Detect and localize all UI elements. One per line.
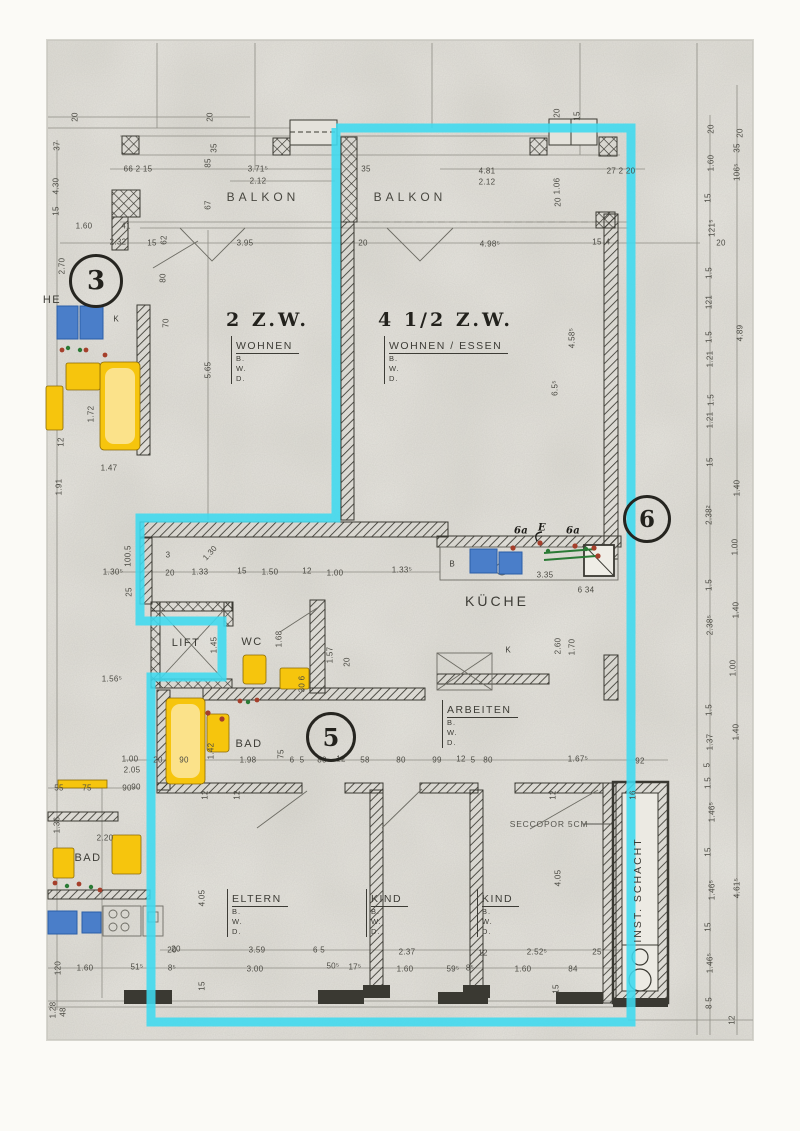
dimension-label: 1.98 [240, 756, 257, 765]
dimension-label: 3.00 [247, 965, 264, 974]
dimension-label: 25 [125, 587, 134, 597]
dimension-label: 37 [53, 141, 62, 151]
dimension-label: 15 [706, 457, 715, 467]
dimension-label: 1.46⁵ [706, 953, 715, 973]
dimension-label: 90 [179, 756, 189, 765]
dimension-label: 6a [566, 526, 580, 537]
dimension-label: 48 [59, 1007, 68, 1017]
dimension-label: 8⁵ [466, 964, 474, 973]
room-block-line: D. [389, 374, 508, 384]
dimension-label: 67 [204, 200, 213, 210]
room-label-bad-left: BAD [74, 852, 101, 864]
dimension-label: 1.00 [327, 569, 344, 578]
dimension-label: 85 [204, 158, 213, 168]
annotation-seccopor: SECCOPOR 5CM [510, 819, 589, 829]
room-block-title: ARBEITEN [447, 704, 518, 718]
dimension-label: 15 [592, 238, 602, 247]
dimension-label: 15 [147, 239, 157, 248]
dimension-label: 20 [358, 239, 368, 248]
dimension-label: 80 [396, 756, 406, 765]
dimension-label: 16 [629, 790, 638, 800]
dimension-label: 4.05 [198, 890, 207, 907]
dimension-label: 1.60 [515, 965, 532, 974]
dimension-label: 4.61⁵ [733, 878, 742, 898]
dimension-label: 15 [704, 193, 713, 203]
dimension-label: 1.21 [706, 351, 715, 368]
dimension-label: 1.60 [76, 222, 93, 231]
dimension-label: 12 [456, 755, 466, 764]
dimension-label: 84 [568, 965, 578, 974]
room-block-title: KIND [482, 893, 519, 907]
dimension-label: 2.60 [554, 638, 563, 655]
dimension-label: 1.67⁵ [568, 755, 588, 764]
dimension-label: 58 [360, 756, 370, 765]
dimension-label: E [538, 523, 546, 534]
dimension-label: 6a [514, 526, 528, 537]
dimension-label: 2.05 [124, 766, 141, 775]
dimension-label: 75 [82, 784, 92, 793]
dimension-label: 59⁵ [446, 965, 459, 974]
room-block-kind: KINDB.W.D. [366, 889, 408, 937]
dimension-label: 1.72 [87, 406, 96, 423]
dimension-label: 12 [201, 790, 210, 800]
dimension-label: 2.38² [705, 505, 714, 525]
dimension-label: 3.35 [537, 571, 554, 580]
unit-title: 2 Z.W. [226, 309, 309, 331]
room-block-line: D. [232, 927, 288, 937]
dimension-label: 6 34 [578, 586, 595, 595]
dimension-label: 1.60 [707, 155, 716, 172]
dimension-label: 4 [606, 238, 611, 247]
dimension-label: 41 [121, 222, 131, 231]
dimension-label: 1.5 [705, 267, 714, 279]
room-block-line: W. [371, 917, 408, 927]
dimension-label: 1.40 [732, 602, 741, 619]
room-block-line: B. [447, 718, 518, 728]
room-block-eltern: ELTERNB.W.D. [227, 889, 288, 937]
dimension-label: 121⁵ [708, 219, 717, 237]
dimension-label: 2.38⁵ [706, 615, 715, 635]
dimension-label: 20 [554, 197, 563, 207]
room-block-line: B. [482, 907, 519, 917]
room-block-line: B. [371, 907, 408, 917]
dimension-label: 1.36 [53, 817, 62, 834]
room-label-balkon-left: BALKON [227, 190, 300, 204]
dimension-label: 6.5⁵ [551, 380, 560, 396]
dimension-label: 15 [704, 922, 713, 932]
dimension-label: 1.45 [210, 637, 219, 654]
dimension-label: 1.30 [201, 544, 219, 562]
dimension-label: 6 [290, 756, 295, 765]
dimension-label: 17⁵ [348, 963, 361, 972]
dimension-label: 75 [277, 749, 286, 759]
dimension-label: 15 [552, 984, 561, 994]
section-marker-6: 6 [623, 495, 671, 543]
dimension-label: 2.20 [97, 834, 114, 843]
room-block-title: WOHNEN / ESSEN [389, 340, 508, 354]
dimension-label: 15 [198, 981, 207, 991]
dimension-label: 1.5 [705, 704, 714, 716]
closet-label-k-kitchen: K [505, 646, 510, 655]
room-block-line: D. [482, 927, 519, 937]
dimension-label: 4.81 [479, 167, 496, 176]
section-marker-5: 5 [306, 712, 356, 762]
dimension-label: 35 [361, 165, 371, 174]
dimension-label: 1.50 [262, 568, 279, 577]
dimension-label: 1.40 [733, 480, 742, 497]
dimension-label: 12 [302, 567, 312, 576]
room-block-kind: KINDB.W.D. [477, 889, 519, 937]
dimension-label: 1.00 [729, 660, 738, 677]
dimension-label: 5.65 [204, 362, 213, 379]
room-block-line: D. [236, 374, 299, 384]
room-block-line: W. [482, 917, 519, 927]
room-block-title: WOHNEN [236, 340, 299, 354]
dimension-label: 120 [54, 961, 63, 975]
dimension-label: 1.47 [101, 464, 118, 473]
dimension-label: 66 2 15 [124, 165, 153, 174]
room-label-balkon-right: BALKON [374, 190, 447, 204]
dimension-label: 35 [733, 143, 742, 153]
dimension-label: 4.98⁵ [480, 240, 500, 249]
dimension-label: 3 [166, 551, 171, 560]
room-block-wohnen: WOHNENB.W.D. [231, 336, 299, 384]
dimension-label: 106⁵ [733, 163, 742, 181]
dimension-label: 20 [153, 756, 163, 765]
room-block-line: W. [447, 728, 518, 738]
dimension-label: 90 [131, 783, 141, 792]
dimension-label: 121 [705, 295, 714, 309]
room-block-line: W. [236, 364, 299, 374]
dimension-label: 12 [478, 949, 488, 958]
dimension-label: 30 6 [298, 676, 307, 693]
dimension-label: 1.5 [705, 579, 714, 591]
dimension-label: 15 [237, 567, 247, 576]
room-block-title: ELTERN [232, 893, 288, 907]
room-label-bad-unit5: BAD [235, 738, 262, 750]
dimension-label: 2.70 [58, 258, 67, 275]
dimension-label: 51⁵ [130, 963, 143, 972]
section-marker-3: 3 [69, 254, 123, 308]
dimension-label: 20 [736, 128, 745, 138]
room-label-lift: LIFT [172, 637, 201, 649]
room-block-line: B. [236, 354, 299, 364]
dimension-label: 80 [483, 756, 493, 765]
room-block-line: W. [232, 917, 288, 927]
dimension-label: 1.56⁵ [102, 675, 122, 684]
dimension-label: 1.42 [207, 743, 216, 760]
dimension-label: 4.05 [554, 870, 563, 887]
dimension-label: 1.00 [122, 755, 139, 764]
room-block-line: W. [389, 364, 508, 374]
dimension-label: 3.59 [249, 946, 266, 955]
dimension-label: 1.40 [732, 724, 741, 741]
dimension-label: 2.12 [479, 178, 496, 187]
dimension-label: 5 [471, 756, 476, 765]
dimension-label: 90 [122, 784, 132, 793]
room-block-title: KIND [371, 893, 408, 907]
dimension-label: 1.33 [192, 568, 209, 577]
dimension-label: 12 [57, 437, 66, 447]
dimension-label: 1.70 [568, 639, 577, 656]
dimension-label: 2.37 [399, 948, 416, 957]
dimension-label: 15 [52, 206, 61, 216]
dimension-label: 20 [716, 239, 726, 248]
dimension-label: 27 2 20 [607, 167, 636, 176]
dimension-label: 20 [343, 657, 352, 667]
dimension-label: 4.58⁵ [568, 328, 577, 348]
dimension-label: 20 [553, 108, 562, 118]
dimension-label: 80 [159, 273, 168, 283]
dimension-label: 1.46⁵ [708, 802, 717, 822]
dimension-label: 1.21 [706, 412, 715, 429]
dimension-label: 1.30⁵ [103, 568, 123, 577]
closet-label-k-left: K [113, 315, 118, 324]
dimension-label: 1.5 [704, 777, 713, 789]
dimension-label: 20 [165, 569, 175, 578]
dimension-label: 2.32 [110, 238, 127, 247]
dimension-label: 4.89 [736, 325, 745, 342]
dimension-label: 5 [300, 756, 305, 765]
dimension-label: 8 5 [705, 997, 714, 1009]
dimension-label: 70 [162, 318, 171, 328]
dimension-label: 3.71⁵ [248, 165, 268, 174]
dimension-label: 100.5 [124, 545, 133, 567]
dimension-label: 1.46⁵ [708, 880, 717, 900]
dimension-label: 2.12 [250, 177, 267, 186]
dimension-label: 1.91 [55, 479, 64, 496]
room-block-wohnen-essen: WOHNEN / ESSENB.W.D. [384, 336, 508, 384]
dimension-label: 5 [703, 763, 712, 768]
dimension-label: 1.33⁵ [392, 566, 412, 575]
dimension-label: 1.28 [49, 1002, 58, 1019]
floor-plan-page: 2020374.301566 2 153.71⁵2.128567351.6041… [0, 0, 800, 1131]
dimension-label: 4.30 [52, 178, 61, 195]
room-block-line: D. [447, 738, 518, 748]
room-label-inst-schacht: INST. SCHACHT [632, 837, 644, 942]
dimension-label: 20 [71, 112, 80, 122]
dimension-label: 99 [432, 756, 442, 765]
room-label-kueche: KÜCHE [465, 593, 529, 609]
dimension-label: 55 [54, 784, 64, 793]
room-label-wc: WC [241, 636, 262, 648]
dimension-label: 1.5 [707, 394, 716, 406]
dimension-label: 1.06 [553, 178, 562, 195]
dimension-label: 62 [160, 235, 169, 245]
annotations-layer: 2020374.301566 2 153.71⁵2.128567351.6041… [0, 0, 800, 1131]
dimension-label: 12 [728, 1015, 737, 1025]
room-block-line: D. [371, 927, 408, 937]
dimension-label: 1.57 [326, 647, 335, 664]
dimension-label: 2.52⁵ [527, 948, 547, 957]
dimension-label: 50⁵ [326, 962, 339, 971]
dimension-label: 1.60 [397, 965, 414, 974]
dimension-label: 3.95 [237, 239, 254, 248]
room-block-arbeiten: ARBEITENB.W.D. [442, 700, 518, 748]
dimension-label: 20 [707, 124, 716, 134]
room-block-line: B. [232, 907, 288, 917]
counter-label-b: B [449, 560, 454, 569]
dimension-label: 8⁵ [168, 964, 176, 973]
dimension-label: 6 5 [313, 946, 325, 955]
dimension-label: 1.68 [275, 631, 284, 648]
dimension-label: 12 [233, 790, 242, 800]
dimension-label: 15 [704, 847, 713, 857]
dimension-label: 20 [171, 945, 181, 954]
dimension-label: 25 [592, 948, 602, 957]
room-label-fragment-he: HE [43, 294, 61, 306]
dimension-label: 1.60 [77, 964, 94, 973]
unit-title: 4 1/2 Z.W. [378, 309, 513, 331]
room-block-line: B. [389, 354, 508, 364]
dimension-label: 1.00 [731, 539, 740, 556]
dimension-label: 92 [635, 757, 645, 766]
dimension-label: 1.5 [705, 331, 714, 343]
dimension-label: 15 [573, 111, 582, 121]
dimension-label: 20 [206, 112, 215, 122]
dimension-label: 1.37 [706, 734, 715, 751]
dimension-label: 35 [210, 143, 219, 153]
dimension-label: 12 [549, 790, 558, 800]
